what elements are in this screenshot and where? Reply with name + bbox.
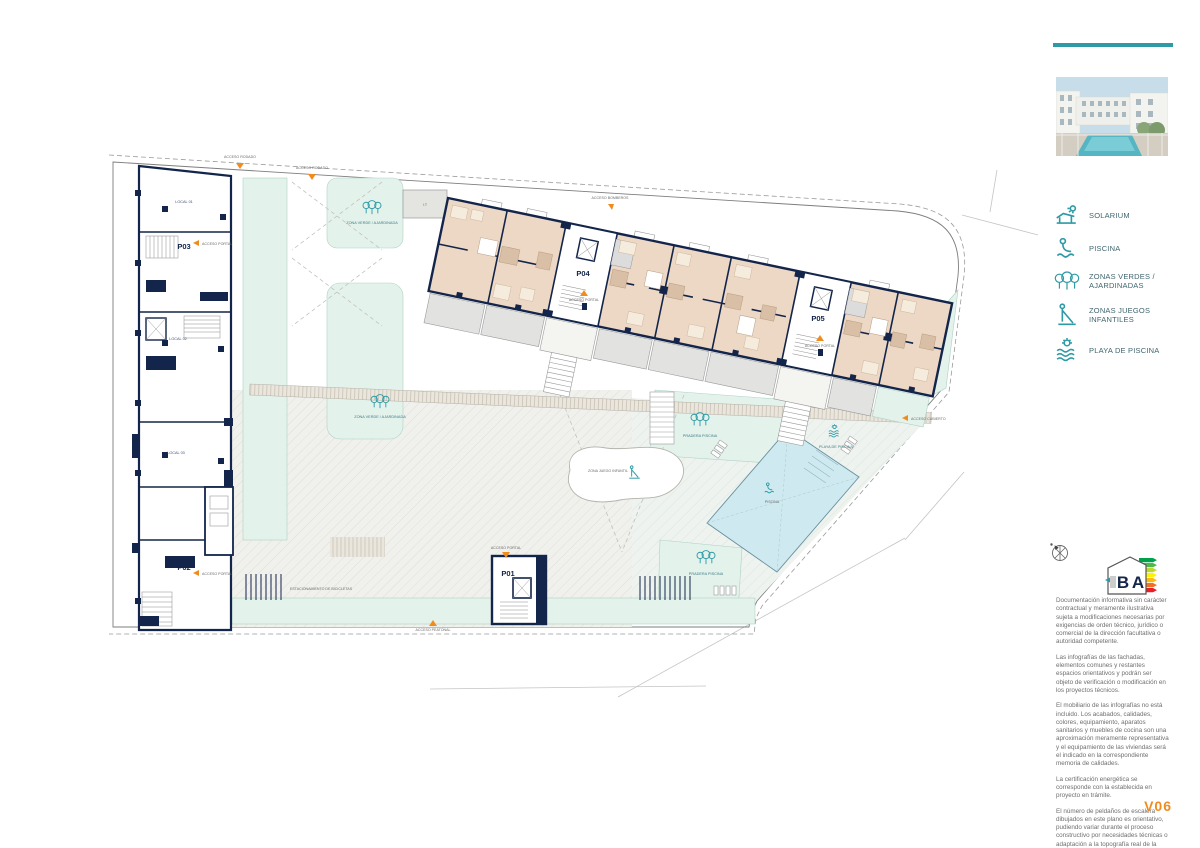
acceso-peatonal-label: ACCESO PEATONAL bbox=[415, 628, 450, 632]
doormat bbox=[582, 303, 587, 310]
acceso-cubierto-label: ACCESO CUBIERTO bbox=[911, 417, 946, 421]
disclaimer-paragraph: Las infografías de las fachadas, element… bbox=[1056, 654, 1170, 695]
local-03-label: LOCAL 03 bbox=[167, 451, 185, 455]
piscina-icon bbox=[1054, 237, 1080, 259]
legend-item-zonas-verdes: ZONAS VERDES / AJARDINADAS bbox=[1054, 270, 1194, 292]
zona-verde-label: ZONA VERDE / AJARDINADA bbox=[354, 415, 406, 419]
portal-p04-label: P04 bbox=[576, 269, 590, 278]
playground-label: ZONA JUEGO INFANTIL bbox=[588, 469, 628, 473]
portal-p01-label: P01 bbox=[501, 569, 514, 578]
energy-letter-a: A bbox=[1132, 573, 1144, 592]
legend-item-juegos-infantiles: ZONAS JUEGOS INFANTILES bbox=[1054, 303, 1194, 327]
paving-stripes bbox=[330, 537, 385, 557]
disclaimer-paragraph: El mobiliario de las infografías no está… bbox=[1056, 702, 1170, 768]
acceso-bomberos-label: ACCESO BOMBEROS bbox=[592, 196, 630, 200]
legend-label: SOLARIUM bbox=[1089, 211, 1130, 220]
acceso-rodado-label: ACCESO RODADO bbox=[224, 155, 256, 159]
site-plan: I.T ZONA JUEGO INFANTIL PISCINA bbox=[0, 0, 1040, 848]
courtyard-paving bbox=[232, 390, 632, 627]
utility-box: I.T bbox=[403, 190, 447, 218]
juegos-infantiles-icon bbox=[1054, 303, 1080, 327]
legend-item-piscina: PISCINA bbox=[1054, 237, 1194, 259]
energy-letter-b: B bbox=[1117, 573, 1129, 592]
sidebar-accent-rule bbox=[1053, 43, 1173, 47]
legend-label: PISCINA bbox=[1089, 244, 1120, 253]
north-compass-icon bbox=[1048, 541, 1070, 563]
acceso-portal-label: ACCESO PORTAL bbox=[491, 546, 521, 550]
legend-item-playa-piscina: PLAYA DE PISCINA bbox=[1054, 338, 1194, 362]
local-01-label: LOCAL 01 bbox=[175, 200, 193, 204]
version-label: V06 bbox=[1118, 798, 1172, 814]
project-render-photo bbox=[1056, 77, 1168, 156]
legend-label: ZONAS VERDES / AJARDINADAS bbox=[1089, 272, 1194, 290]
left-building bbox=[132, 166, 233, 630]
acceso-portal-label: ACCESO PORTAL bbox=[202, 572, 232, 576]
legend-item-solarium: SOLARIUM bbox=[1054, 204, 1194, 226]
zonas-verdes-icon bbox=[1054, 270, 1080, 292]
portal-p01-block bbox=[492, 556, 546, 624]
plan-sheet: I.T ZONA JUEGO INFANTIL PISCINA bbox=[0, 0, 1200, 848]
disclaimer-paragraph: Documentación informativa sin carácter c… bbox=[1056, 597, 1170, 647]
playground: ZONA JUEGO INFANTIL bbox=[568, 447, 683, 502]
exterior-stairs bbox=[650, 392, 674, 444]
portal-p05-label: P05 bbox=[811, 314, 824, 323]
playa-piscina-label: PLAYA DE PISCINA bbox=[819, 445, 854, 449]
pradera-piscina-label: PRADERA PISCINA bbox=[689, 572, 724, 576]
energy-certificate-icon: B A bbox=[1103, 552, 1165, 598]
legend: SOLARIUM PISCINA ZONAS VERDES / AJARDINA… bbox=[1054, 204, 1194, 373]
legend-label: ZONAS JUEGOS INFANTILES bbox=[1089, 306, 1194, 324]
acceso-portal-label: ACCESO PORTAL bbox=[805, 344, 835, 348]
acceso-rodado-label: ACCESO RODADO bbox=[296, 166, 328, 170]
legend-label: PLAYA DE PISCINA bbox=[1089, 346, 1159, 355]
acceso-portal-label: ACCESO PORTAL bbox=[569, 298, 599, 302]
pool-label: PISCINA bbox=[765, 500, 780, 504]
local-02-label: LOCAL 02 bbox=[169, 337, 187, 341]
bicicletas-label: ESTACIONAMIENTO DE BICICLETAS bbox=[290, 587, 353, 591]
acceso-portal-label: ACCESO PORTAL bbox=[202, 242, 232, 246]
zona-verde-label: ZONA VERDE / AJARDINADA bbox=[346, 221, 398, 225]
portal-p02-label: P02 bbox=[177, 563, 190, 572]
solarium-icon bbox=[1054, 204, 1080, 226]
doormat bbox=[818, 349, 823, 356]
playa-piscina-icon bbox=[1054, 338, 1080, 362]
disclaimer-paragraph: La certificación energética se correspon… bbox=[1056, 776, 1170, 801]
portal-p03-label: P03 bbox=[177, 242, 190, 251]
pradera-piscina-label: PRADERA PISCINA bbox=[683, 434, 718, 438]
